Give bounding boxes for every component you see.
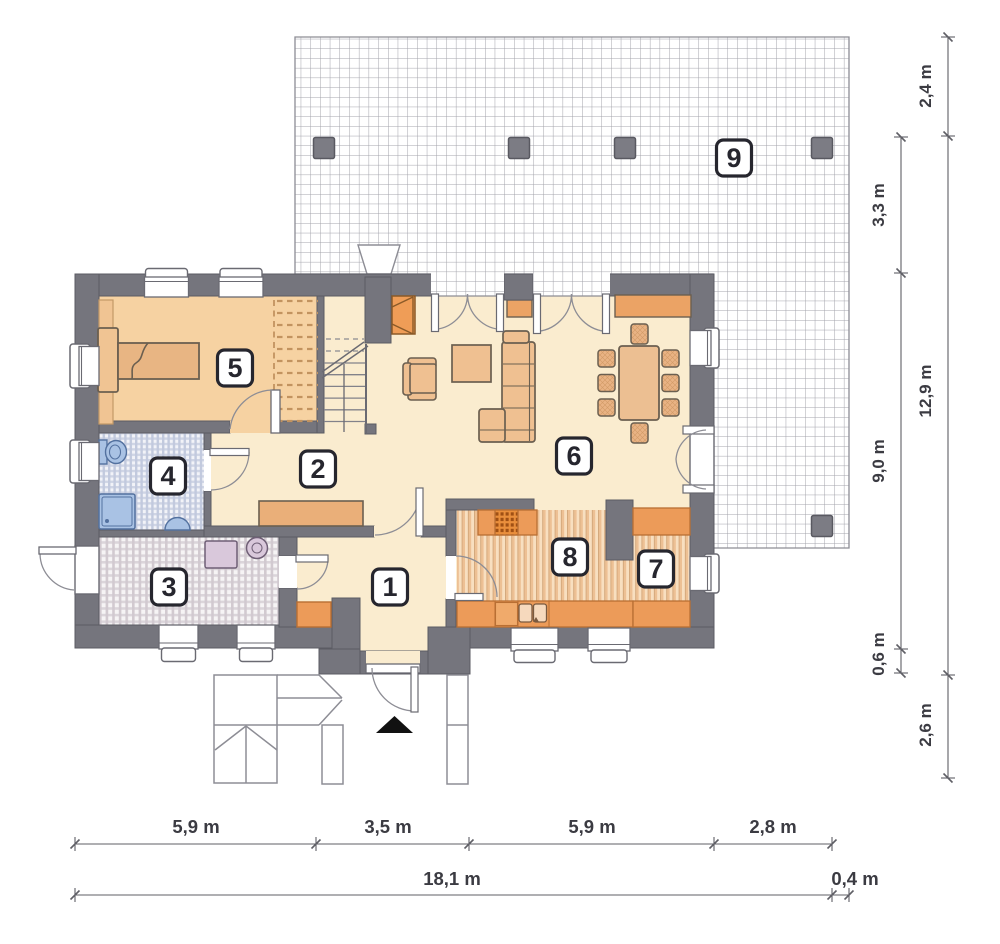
svg-text:6: 6 — [566, 441, 581, 471]
svg-text:5: 5 — [227, 353, 242, 383]
svg-text:18,1 m: 18,1 m — [423, 868, 481, 889]
svg-text:0,4 m: 0,4 m — [831, 868, 878, 889]
svg-text:2,6 m: 2,6 m — [916, 703, 935, 746]
svg-text:2,4 m: 2,4 m — [916, 64, 935, 107]
svg-text:3,3 m: 3,3 m — [869, 183, 888, 226]
svg-text:4: 4 — [160, 461, 175, 491]
svg-text:12,9 m: 12,9 m — [916, 365, 935, 418]
svg-text:9,0 m: 9,0 m — [869, 439, 888, 482]
svg-text:2: 2 — [310, 454, 325, 484]
svg-text:2,8 m: 2,8 m — [749, 816, 796, 837]
svg-text:9: 9 — [726, 143, 741, 173]
svg-text:7: 7 — [648, 554, 663, 584]
svg-text:3: 3 — [161, 572, 176, 602]
svg-text:0,6 m: 0,6 m — [869, 632, 888, 675]
svg-text:8: 8 — [562, 542, 577, 572]
svg-text:3,5 m: 3,5 m — [364, 816, 411, 837]
svg-text:1: 1 — [382, 572, 397, 602]
svg-text:5,9 m: 5,9 m — [568, 816, 615, 837]
svg-text:5,9 m: 5,9 m — [172, 816, 219, 837]
